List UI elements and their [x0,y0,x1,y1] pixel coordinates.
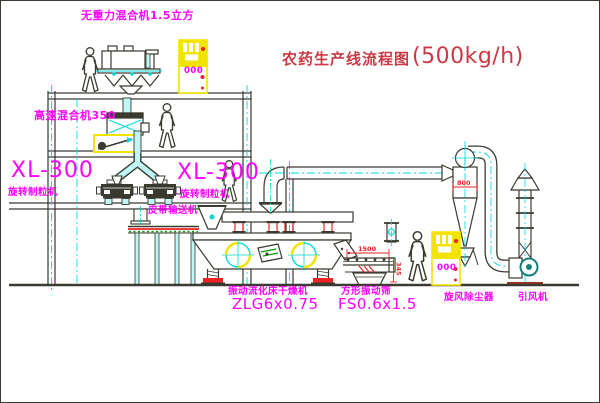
worker-figure-middle-floor [160,104,176,148]
upper-cabinet-display: 000 [184,67,203,76]
granulator-right-name: 旋转制粒机 [180,190,230,200]
sieve-model-label: FS0.6x1.5 [338,297,417,312]
fluid-bed-dryer [193,206,357,285]
title-capacity: (500kg/h) [412,44,524,69]
title-chinese: 农药生产线流程图 [282,48,410,69]
belt-conveyor-label: 皮带输送机 [148,206,198,216]
high-speed-mixer-label: 高速混合机350 [34,110,116,121]
sieve-length-dimension: 1500 [358,246,376,253]
granulator-right-model: XL-300 [177,162,260,184]
control-cabinet-ground [432,232,460,285]
fan-label: 引风机 [518,293,548,303]
flow-diagram-canvas: 农药生产线流程图 (500kg/h) 无重力混合机1.5立方 高速混合机350 … [0,0,600,403]
granulator-left-model: XL-300 [11,160,94,182]
cyclone-dimension: 800 [457,180,471,187]
duct-transition-valve [442,165,453,181]
gravity-mixer [96,46,162,114]
dryer-model-label: ZLG6x0.75 [232,297,319,312]
sieve-height-dimension: 345 [395,262,402,276]
gravity-mixer-label: 无重力混合机1.5立方 [81,10,194,21]
ground-cabinet-display: 000 [437,264,456,273]
diagram-title: 农药生产线流程图 (500kg/h) [282,43,524,69]
worker-figure-top-floor [83,48,99,92]
granulator-left [97,176,138,205]
worker-figure-ground [409,232,426,281]
granulator-left-name: 旋转制粒机 [8,188,58,198]
cyclone-label: 旋风除尘器 [444,293,494,303]
belt-conveyor [128,206,199,285]
feed-funnel-pipe [259,159,287,213]
granulator-right [140,176,181,205]
